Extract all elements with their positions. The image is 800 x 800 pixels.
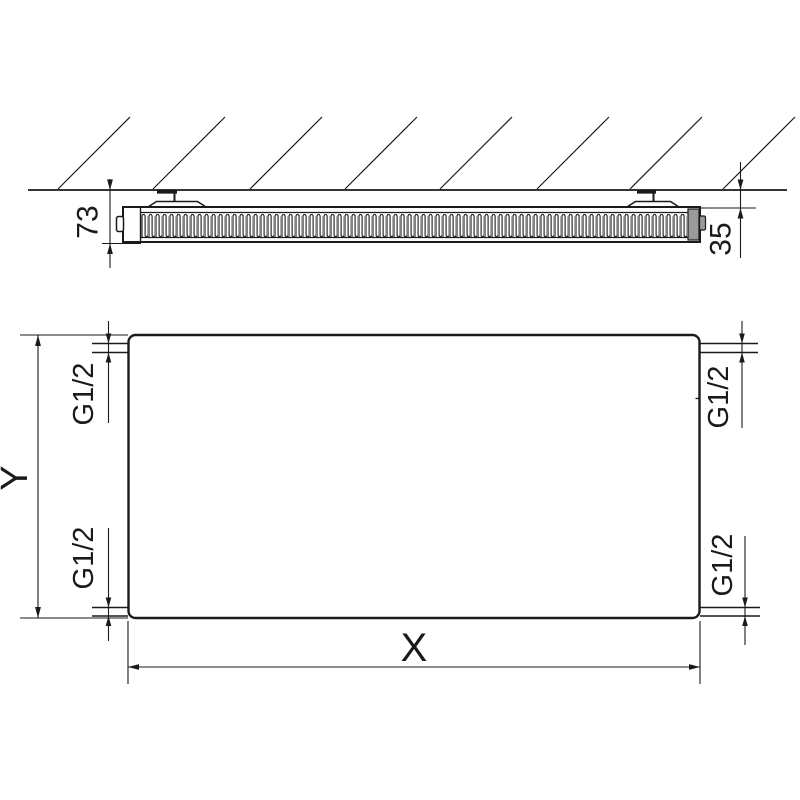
dimension-connection-top-right: G1/2 xyxy=(703,321,745,428)
connection-label-bottom-right: G1/2 xyxy=(707,534,739,597)
wall-hatching xyxy=(58,117,795,189)
radiator-side-section xyxy=(117,207,706,242)
radiator-front-panel xyxy=(129,335,700,618)
dimension-depth-label: 73 xyxy=(72,205,105,238)
connection-stub-top-right xyxy=(700,344,758,353)
connection-label-top-right: G1/2 xyxy=(703,366,735,429)
connection-label-bottom-left: G1/2 xyxy=(68,527,100,590)
right-end-cap xyxy=(688,209,699,240)
dimension-height-label: Y xyxy=(0,465,36,490)
radiator-technical-drawing: 73 35 G1/2 G1/2 xyxy=(0,0,800,800)
left-end-plug xyxy=(117,217,124,232)
connection-label-top-left: G1/2 xyxy=(68,363,100,426)
dimension-wall-gap-label: 35 xyxy=(705,222,738,255)
front-panel-outline xyxy=(129,335,700,618)
dimension-connection-bottom-right: G1/2 xyxy=(707,534,748,645)
dimension-connection-bottom-left: G1/2 xyxy=(68,527,111,641)
convector-fins xyxy=(141,214,687,238)
dimension-width: X xyxy=(128,621,700,684)
dimension-connection-top-left: G1/2 xyxy=(68,321,111,425)
mounting-bracket-left xyxy=(148,192,206,207)
dimension-width-label: X xyxy=(401,626,428,670)
mounting-bracket-right xyxy=(627,192,679,207)
dimension-wall-gap: 35 xyxy=(701,162,756,258)
connection-stub-bottom-right xyxy=(700,608,760,617)
connection-stub-top-left xyxy=(92,344,128,353)
connection-stub-bottom-left xyxy=(92,608,128,617)
